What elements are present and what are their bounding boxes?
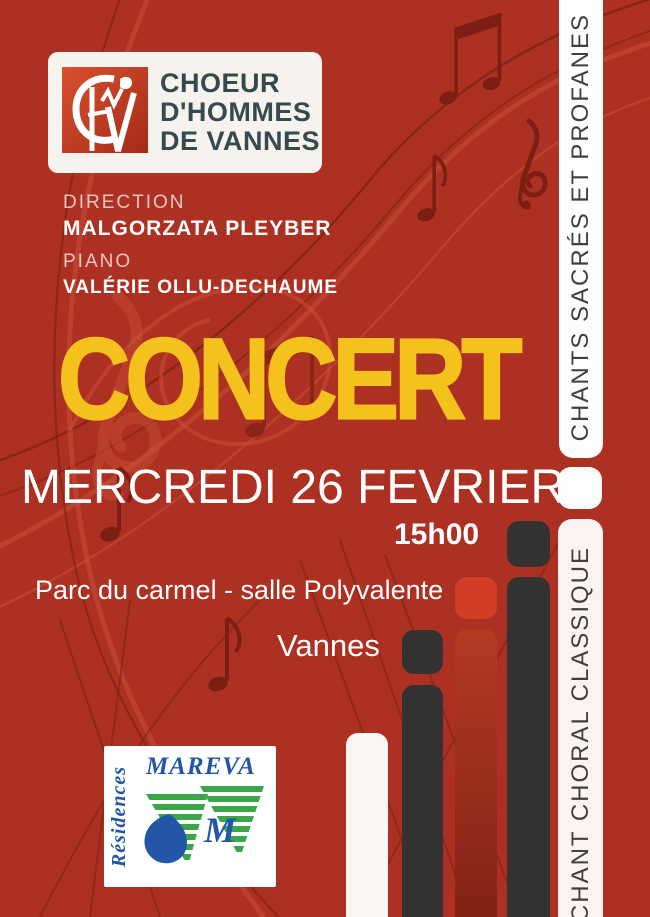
mareva-monogram: M	[203, 810, 238, 850]
piano-label: PIANO	[63, 252, 338, 271]
choir-name: CHOEUR D'HOMMES DE VANNES	[160, 69, 320, 156]
concert-poster: CHANTS SACRÉS ET PROFANES CHANT CHORAL C…	[0, 0, 650, 917]
equalizer-bar-dark-short	[507, 521, 550, 567]
credits-block: DIRECTION MALGORZATA PLEYBER PIANO VALÉR…	[63, 193, 338, 297]
equalizer-bar-white	[346, 733, 388, 917]
ribbon-chant-choral: CHANT CHORAL CLASSIQUE	[558, 519, 603, 917]
event-date: MERCREDI 26 FEVRIER	[21, 464, 565, 512]
choir-name-line1: CHOEUR	[160, 69, 320, 98]
event-time: 15h00	[394, 520, 479, 550]
equalizer-bar-dark-short	[402, 630, 443, 674]
piano-name: VALÉRIE OLLU-DECHAUME	[63, 278, 338, 297]
direction-name: MALGORZATA PLEYBER	[63, 218, 338, 239]
equalizer-bar-red-short	[455, 577, 497, 619]
choir-logo-card: CHOEUR D'HOMMES DE VANNES	[48, 52, 322, 173]
mareva-logo-icon: M	[136, 782, 268, 883]
treble-clef-icon	[520, 121, 545, 210]
ribbon-chants-sacres: CHANTS SACRÉS ET PROFANES	[559, 0, 603, 458]
choir-name-line2: D'HOMMES	[160, 98, 320, 127]
mareva-residences-label: Résidences	[108, 746, 131, 887]
equalizer-bar-red-tall	[455, 629, 497, 917]
direction-label: DIRECTION	[63, 193, 338, 212]
choir-logo-icon	[62, 67, 148, 153]
event-city: Vannes	[277, 630, 380, 661]
equalizer-bar-dark-tall	[402, 685, 443, 917]
ribbon-bottom-label: CHANT CHORAL CLASSIQUE	[567, 546, 595, 917]
eighth-note-icon	[206, 618, 239, 694]
poster-title: CONCERT	[58, 322, 517, 437]
mareva-logo-card: MAREVA Résidences	[104, 746, 276, 887]
choir-name-line3: DE VANNES	[160, 127, 320, 156]
event-venue: Parc du carmel - salle Polyvalente	[35, 577, 443, 604]
mareva-brand: MAREVA	[146, 754, 256, 779]
ribbon-top-label: CHANTS SACRÉS ET PROFANES	[567, 13, 595, 441]
beamed-notes-top-icon	[438, 13, 502, 107]
equalizer-bar-dark-tall	[507, 577, 550, 917]
